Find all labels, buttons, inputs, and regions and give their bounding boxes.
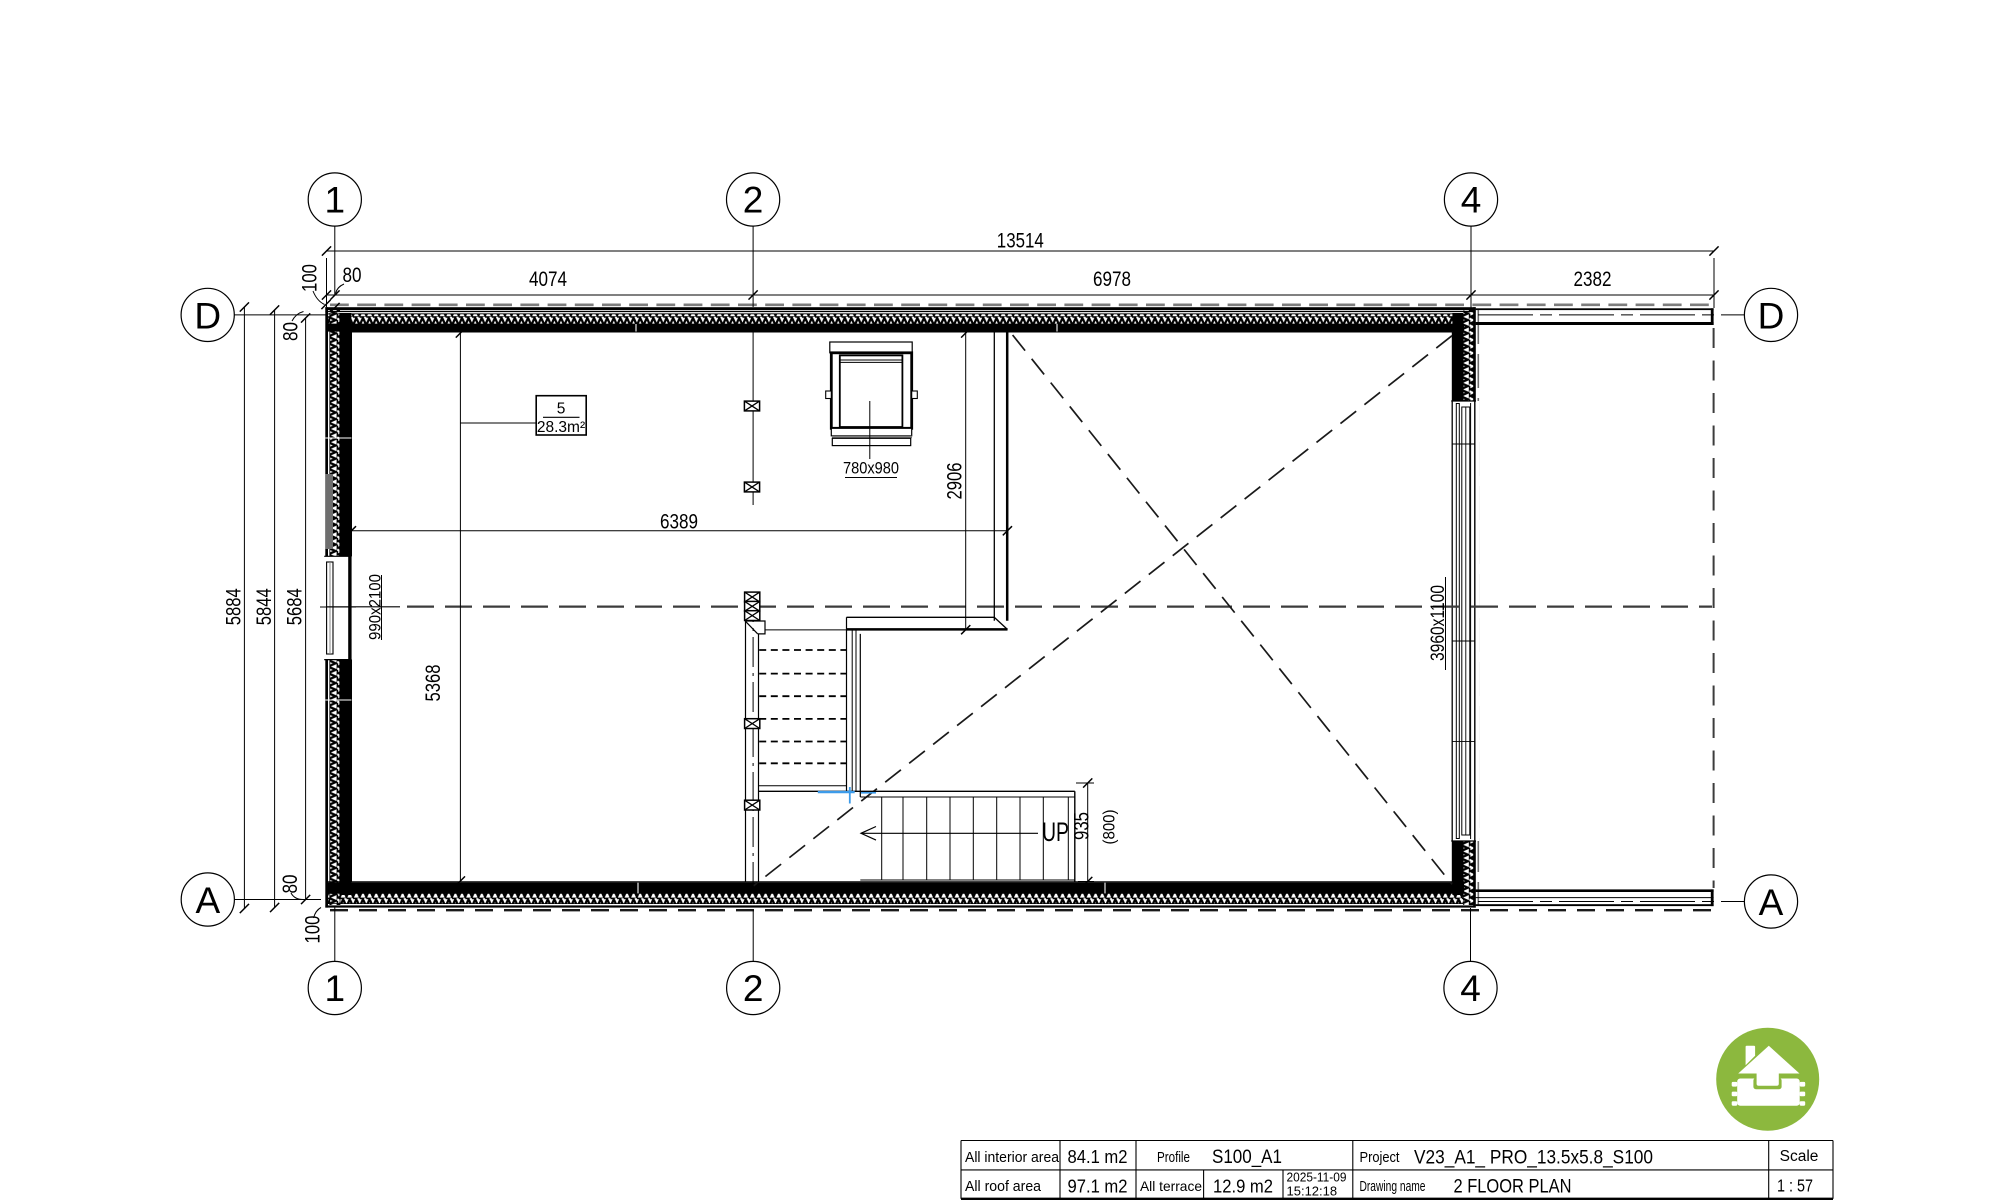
svg-text:990x2100: 990x2100: [366, 574, 385, 640]
svg-text:All interior area: All interior area: [965, 1150, 1060, 1166]
svg-text:1: 1: [325, 180, 346, 221]
svg-text:6389: 6389: [660, 510, 698, 534]
svg-text:(800): (800): [1100, 810, 1119, 845]
svg-text:80: 80: [278, 874, 302, 893]
svg-text:5368: 5368: [421, 665, 445, 702]
svg-text:UP: UP: [1042, 817, 1069, 847]
svg-text:D: D: [194, 295, 221, 336]
svg-text:80: 80: [279, 322, 303, 341]
svg-text:D: D: [1758, 295, 1785, 336]
svg-text:13514: 13514: [997, 229, 1044, 253]
svg-text:84.1 m2: 84.1 m2: [1068, 1146, 1128, 1167]
svg-text:97.1 m2: 97.1 m2: [1068, 1176, 1128, 1197]
svg-text:5684: 5684: [282, 588, 306, 625]
svg-text:100: 100: [298, 264, 322, 292]
svg-text:4: 4: [1461, 180, 1482, 221]
svg-text:Scale: Scale: [1780, 1148, 1819, 1165]
svg-text:2: 2: [743, 180, 764, 221]
svg-text:Profile: Profile: [1157, 1150, 1190, 1166]
svg-text:4: 4: [1460, 968, 1481, 1009]
svg-text:4074: 4074: [529, 267, 567, 291]
svg-text:Drawing name: Drawing name: [1360, 1179, 1426, 1195]
svg-text:2025-11-09: 2025-11-09: [1287, 1170, 1347, 1185]
svg-text:2 FLOOR PLAN: 2 FLOOR PLAN: [1454, 1176, 1572, 1198]
svg-text:5884: 5884: [222, 588, 246, 625]
svg-text:15:12:18: 15:12:18: [1287, 1184, 1338, 1199]
svg-text:1: 1: [325, 968, 346, 1009]
svg-text:2382: 2382: [1574, 267, 1612, 291]
svg-text:12.9 m2: 12.9 m2: [1213, 1176, 1273, 1197]
svg-text:All terrace: All terrace: [1140, 1178, 1202, 1194]
svg-text:1 : 57: 1 : 57: [1777, 1176, 1813, 1196]
svg-text:28.3m²: 28.3m²: [537, 419, 585, 436]
svg-text:935: 935: [1070, 812, 1094, 840]
svg-text:Project: Project: [1360, 1150, 1400, 1166]
svg-text:780x980: 780x980: [843, 459, 899, 478]
svg-text:2906: 2906: [943, 463, 967, 500]
svg-text:80: 80: [343, 263, 362, 287]
svg-text:5844: 5844: [252, 588, 276, 625]
svg-text:5: 5: [557, 401, 566, 418]
svg-text:V23_A1_ PRO_13.5x5.8_S100: V23_A1_ PRO_13.5x5.8_S100: [1414, 1147, 1653, 1169]
svg-text:A: A: [1759, 882, 1784, 923]
svg-text:2: 2: [743, 968, 764, 1009]
svg-text:6978: 6978: [1093, 267, 1131, 291]
svg-text:3960x1100: 3960x1100: [1428, 585, 1449, 661]
svg-text:All roof area: All roof area: [965, 1179, 1042, 1195]
svg-text:S100_A1: S100_A1: [1212, 1146, 1282, 1168]
svg-text:100: 100: [301, 915, 325, 943]
svg-text:A: A: [195, 880, 220, 921]
